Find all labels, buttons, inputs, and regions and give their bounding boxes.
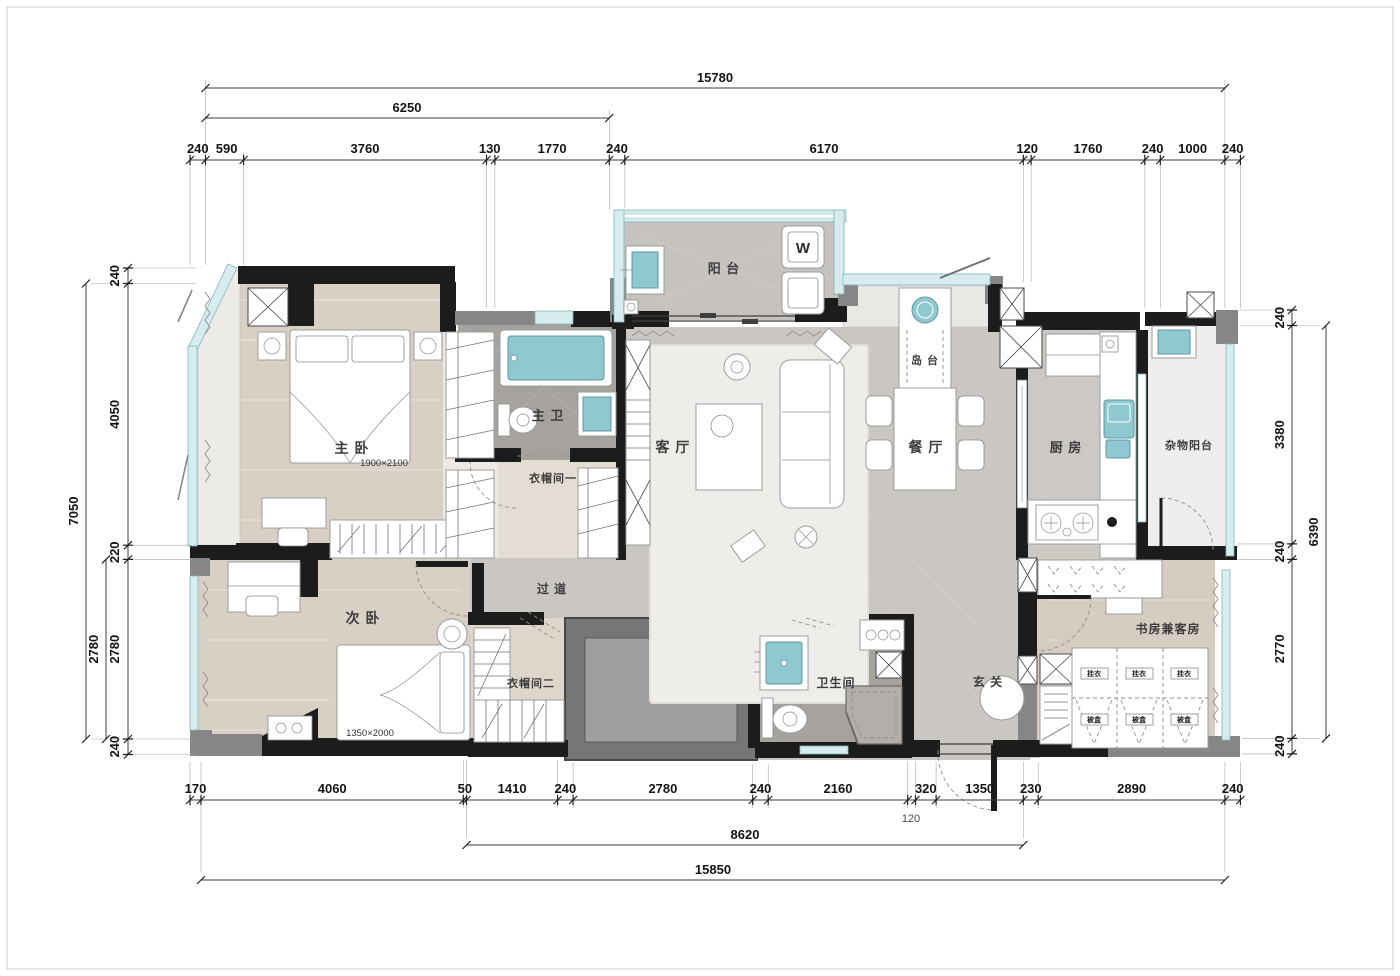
study-window bbox=[1222, 570, 1230, 740]
dim-right-total: 6390 bbox=[1306, 518, 1321, 547]
shoe-cabinet bbox=[1040, 686, 1072, 744]
island-label: 岛 台 bbox=[911, 353, 939, 367]
svg-text:240: 240 bbox=[1272, 541, 1287, 563]
wardrobe-unit bbox=[578, 468, 618, 558]
svg-text:1770: 1770 bbox=[538, 141, 567, 156]
floor-plan-page: 主 卧 1900×2100 衣帽间一 主 卫 W 阳 台 bbox=[0, 0, 1400, 976]
svg-text:2890: 2890 bbox=[1117, 781, 1146, 796]
dim-bottom-total: 15850 bbox=[695, 862, 731, 877]
floor-plan-drawing: 主 卧 1900×2100 衣帽间一 主 卫 W 阳 台 bbox=[0, 0, 1400, 976]
dim-left-total: 7050 bbox=[66, 497, 81, 526]
dining-bay-window bbox=[843, 258, 990, 285]
dining-chair bbox=[958, 440, 984, 470]
dining-chair bbox=[866, 396, 892, 426]
wardrobe-cell-label: 被盒 bbox=[1126, 714, 1153, 725]
utility-window bbox=[1226, 344, 1234, 556]
washing-machine: W bbox=[782, 226, 824, 268]
master-bedroom-label: 主 卧 bbox=[335, 440, 370, 456]
wardrobe-cell-label: 挂衣 bbox=[1171, 668, 1198, 679]
svg-text:4050: 4050 bbox=[107, 400, 122, 429]
utility-sink bbox=[1152, 326, 1196, 358]
svg-text:240: 240 bbox=[555, 781, 577, 796]
svg-text:240: 240 bbox=[187, 141, 209, 156]
wardrobe-cell-label: 被盒 bbox=[1081, 714, 1108, 725]
svg-text:挂衣: 挂衣 bbox=[1132, 669, 1147, 678]
dryer bbox=[782, 272, 824, 314]
svg-text:被盒: 被盒 bbox=[1177, 715, 1192, 724]
dining-label: 餐 厅 bbox=[908, 439, 944, 455]
wardrobe-cell-label: 挂衣 bbox=[1126, 668, 1153, 679]
svg-text:1410: 1410 bbox=[498, 781, 527, 796]
svg-text:2780: 2780 bbox=[648, 781, 677, 796]
second-bed-size-label: 1350×2000 bbox=[346, 728, 394, 739]
svg-text:2160: 2160 bbox=[824, 781, 853, 796]
column-x-icon bbox=[1040, 654, 1072, 684]
bathroom-sink bbox=[578, 392, 616, 436]
bathroom-small-window bbox=[800, 746, 848, 754]
column-x-icon bbox=[248, 288, 288, 326]
bathtub bbox=[500, 330, 612, 386]
second-bedroom-window bbox=[190, 576, 198, 730]
entry-door bbox=[938, 744, 997, 811]
study-wardrobe: 挂衣 挂衣 挂衣 被盒 被盒 被盒 bbox=[1072, 648, 1208, 748]
glass-door bbox=[1138, 374, 1146, 522]
living-label: 客 厅 bbox=[655, 439, 691, 455]
second-bedroom-label: 次 卧 bbox=[346, 610, 381, 626]
column-x-icon bbox=[1187, 292, 1214, 318]
wardrobe-unit bbox=[474, 700, 564, 742]
wardrobe-cell-label: 被盒 bbox=[1171, 714, 1198, 725]
svg-text:2780: 2780 bbox=[107, 635, 122, 664]
svg-text:120: 120 bbox=[1016, 141, 1038, 156]
corridor-label: 过 道 bbox=[537, 581, 567, 596]
svg-text:50: 50 bbox=[458, 781, 472, 796]
svg-text:240: 240 bbox=[1142, 141, 1164, 156]
small-appliance bbox=[1102, 336, 1118, 352]
study-label: 书房兼客房 bbox=[1135, 621, 1200, 636]
svg-text:170: 170 bbox=[185, 781, 207, 796]
washer-label: W bbox=[796, 240, 811, 257]
svg-text:590: 590 bbox=[216, 141, 238, 156]
dim-left-sub: 2780 bbox=[86, 635, 101, 664]
svg-text:1000: 1000 bbox=[1178, 141, 1207, 156]
stove-knob bbox=[1107, 517, 1117, 527]
wardrobe-unit bbox=[446, 470, 494, 558]
balcony-label: 阳 台 bbox=[708, 261, 741, 276]
storage-box bbox=[860, 620, 904, 650]
svg-text:240: 240 bbox=[1222, 781, 1244, 796]
svg-text:2770: 2770 bbox=[1272, 634, 1287, 663]
second-bed bbox=[337, 645, 470, 740]
column-x-icon bbox=[1000, 326, 1042, 368]
sofa bbox=[780, 360, 844, 508]
floor-lamp bbox=[795, 526, 817, 548]
wardrobe-unit bbox=[446, 332, 494, 458]
dining-chair bbox=[958, 396, 984, 426]
svg-text:被盒: 被盒 bbox=[1087, 715, 1102, 724]
corner-unit bbox=[268, 716, 312, 740]
bedside-stool bbox=[437, 619, 467, 649]
wardrobe-unit bbox=[474, 628, 510, 700]
svg-text:240: 240 bbox=[1272, 307, 1287, 329]
nightstand bbox=[258, 332, 286, 360]
second-desk bbox=[228, 562, 300, 616]
wardrobe-cell-label: 挂衣 bbox=[1081, 668, 1108, 679]
svg-text:240: 240 bbox=[1222, 141, 1244, 156]
svg-text:240: 240 bbox=[606, 141, 628, 156]
column-x-icon bbox=[1018, 558, 1037, 592]
kitchen-sink bbox=[1104, 400, 1134, 458]
shower-area bbox=[846, 686, 902, 744]
svg-text:6170: 6170 bbox=[810, 141, 839, 156]
dim-bottom-sub: 8620 bbox=[731, 827, 760, 842]
tv-cabinet bbox=[626, 340, 650, 545]
bath-top-window bbox=[535, 311, 573, 324]
svg-text:3760: 3760 bbox=[351, 141, 380, 156]
closet1-label: 衣帽间一 bbox=[529, 471, 577, 485]
svg-text:130: 130 bbox=[479, 141, 501, 156]
dim-top-sub: 6250 bbox=[393, 100, 422, 115]
round-chair bbox=[724, 354, 750, 380]
svg-text:3380: 3380 bbox=[1272, 420, 1287, 449]
room-living: 客 厅 bbox=[626, 328, 868, 703]
svg-text:240: 240 bbox=[107, 736, 122, 758]
svg-text:挂衣: 挂衣 bbox=[1177, 669, 1192, 678]
utility-balcony-label: 杂物阳台 bbox=[1165, 438, 1213, 452]
master-bath-label: 主 卫 bbox=[532, 408, 565, 423]
svg-text:240: 240 bbox=[750, 781, 772, 796]
svg-text:挂衣: 挂衣 bbox=[1087, 669, 1102, 678]
bathroom-label: 卫生间 bbox=[816, 675, 855, 690]
column-x-icon bbox=[1018, 656, 1037, 684]
svg-text:1760: 1760 bbox=[1074, 141, 1103, 156]
svg-text:4060: 4060 bbox=[318, 781, 347, 796]
nightstand bbox=[414, 332, 442, 360]
svg-text:240: 240 bbox=[1272, 735, 1287, 757]
dining-chair bbox=[866, 440, 892, 470]
svg-text:1350: 1350 bbox=[965, 781, 994, 796]
kitchen-label: 厨 房 bbox=[1050, 440, 1083, 455]
kitchen-island bbox=[899, 288, 951, 388]
svg-text:230: 230 bbox=[1020, 781, 1042, 796]
master-bed-size-label: 1900×2100 bbox=[360, 458, 408, 469]
svg-text:240: 240 bbox=[107, 265, 122, 287]
gas-stove bbox=[1036, 505, 1098, 540]
balcony-sink bbox=[620, 246, 664, 294]
column-x-icon bbox=[1000, 288, 1024, 320]
svg-text:被盒: 被盒 bbox=[1132, 715, 1147, 724]
svg-text:320: 320 bbox=[915, 781, 937, 796]
svg-text:220: 220 bbox=[107, 541, 122, 563]
kitchen-door bbox=[1017, 380, 1027, 508]
column-x-icon bbox=[876, 652, 902, 678]
dim-top-total: 15780 bbox=[697, 70, 733, 85]
bathroom-vanity bbox=[754, 636, 808, 690]
dim-bottom-offset: 120 bbox=[902, 813, 920, 825]
closet2-label: 衣帽间二 bbox=[507, 676, 555, 690]
floor-drain bbox=[624, 300, 638, 314]
entry-label: 玄 关 bbox=[973, 674, 1003, 689]
fridge bbox=[1046, 334, 1100, 376]
coffee-table bbox=[696, 404, 762, 490]
